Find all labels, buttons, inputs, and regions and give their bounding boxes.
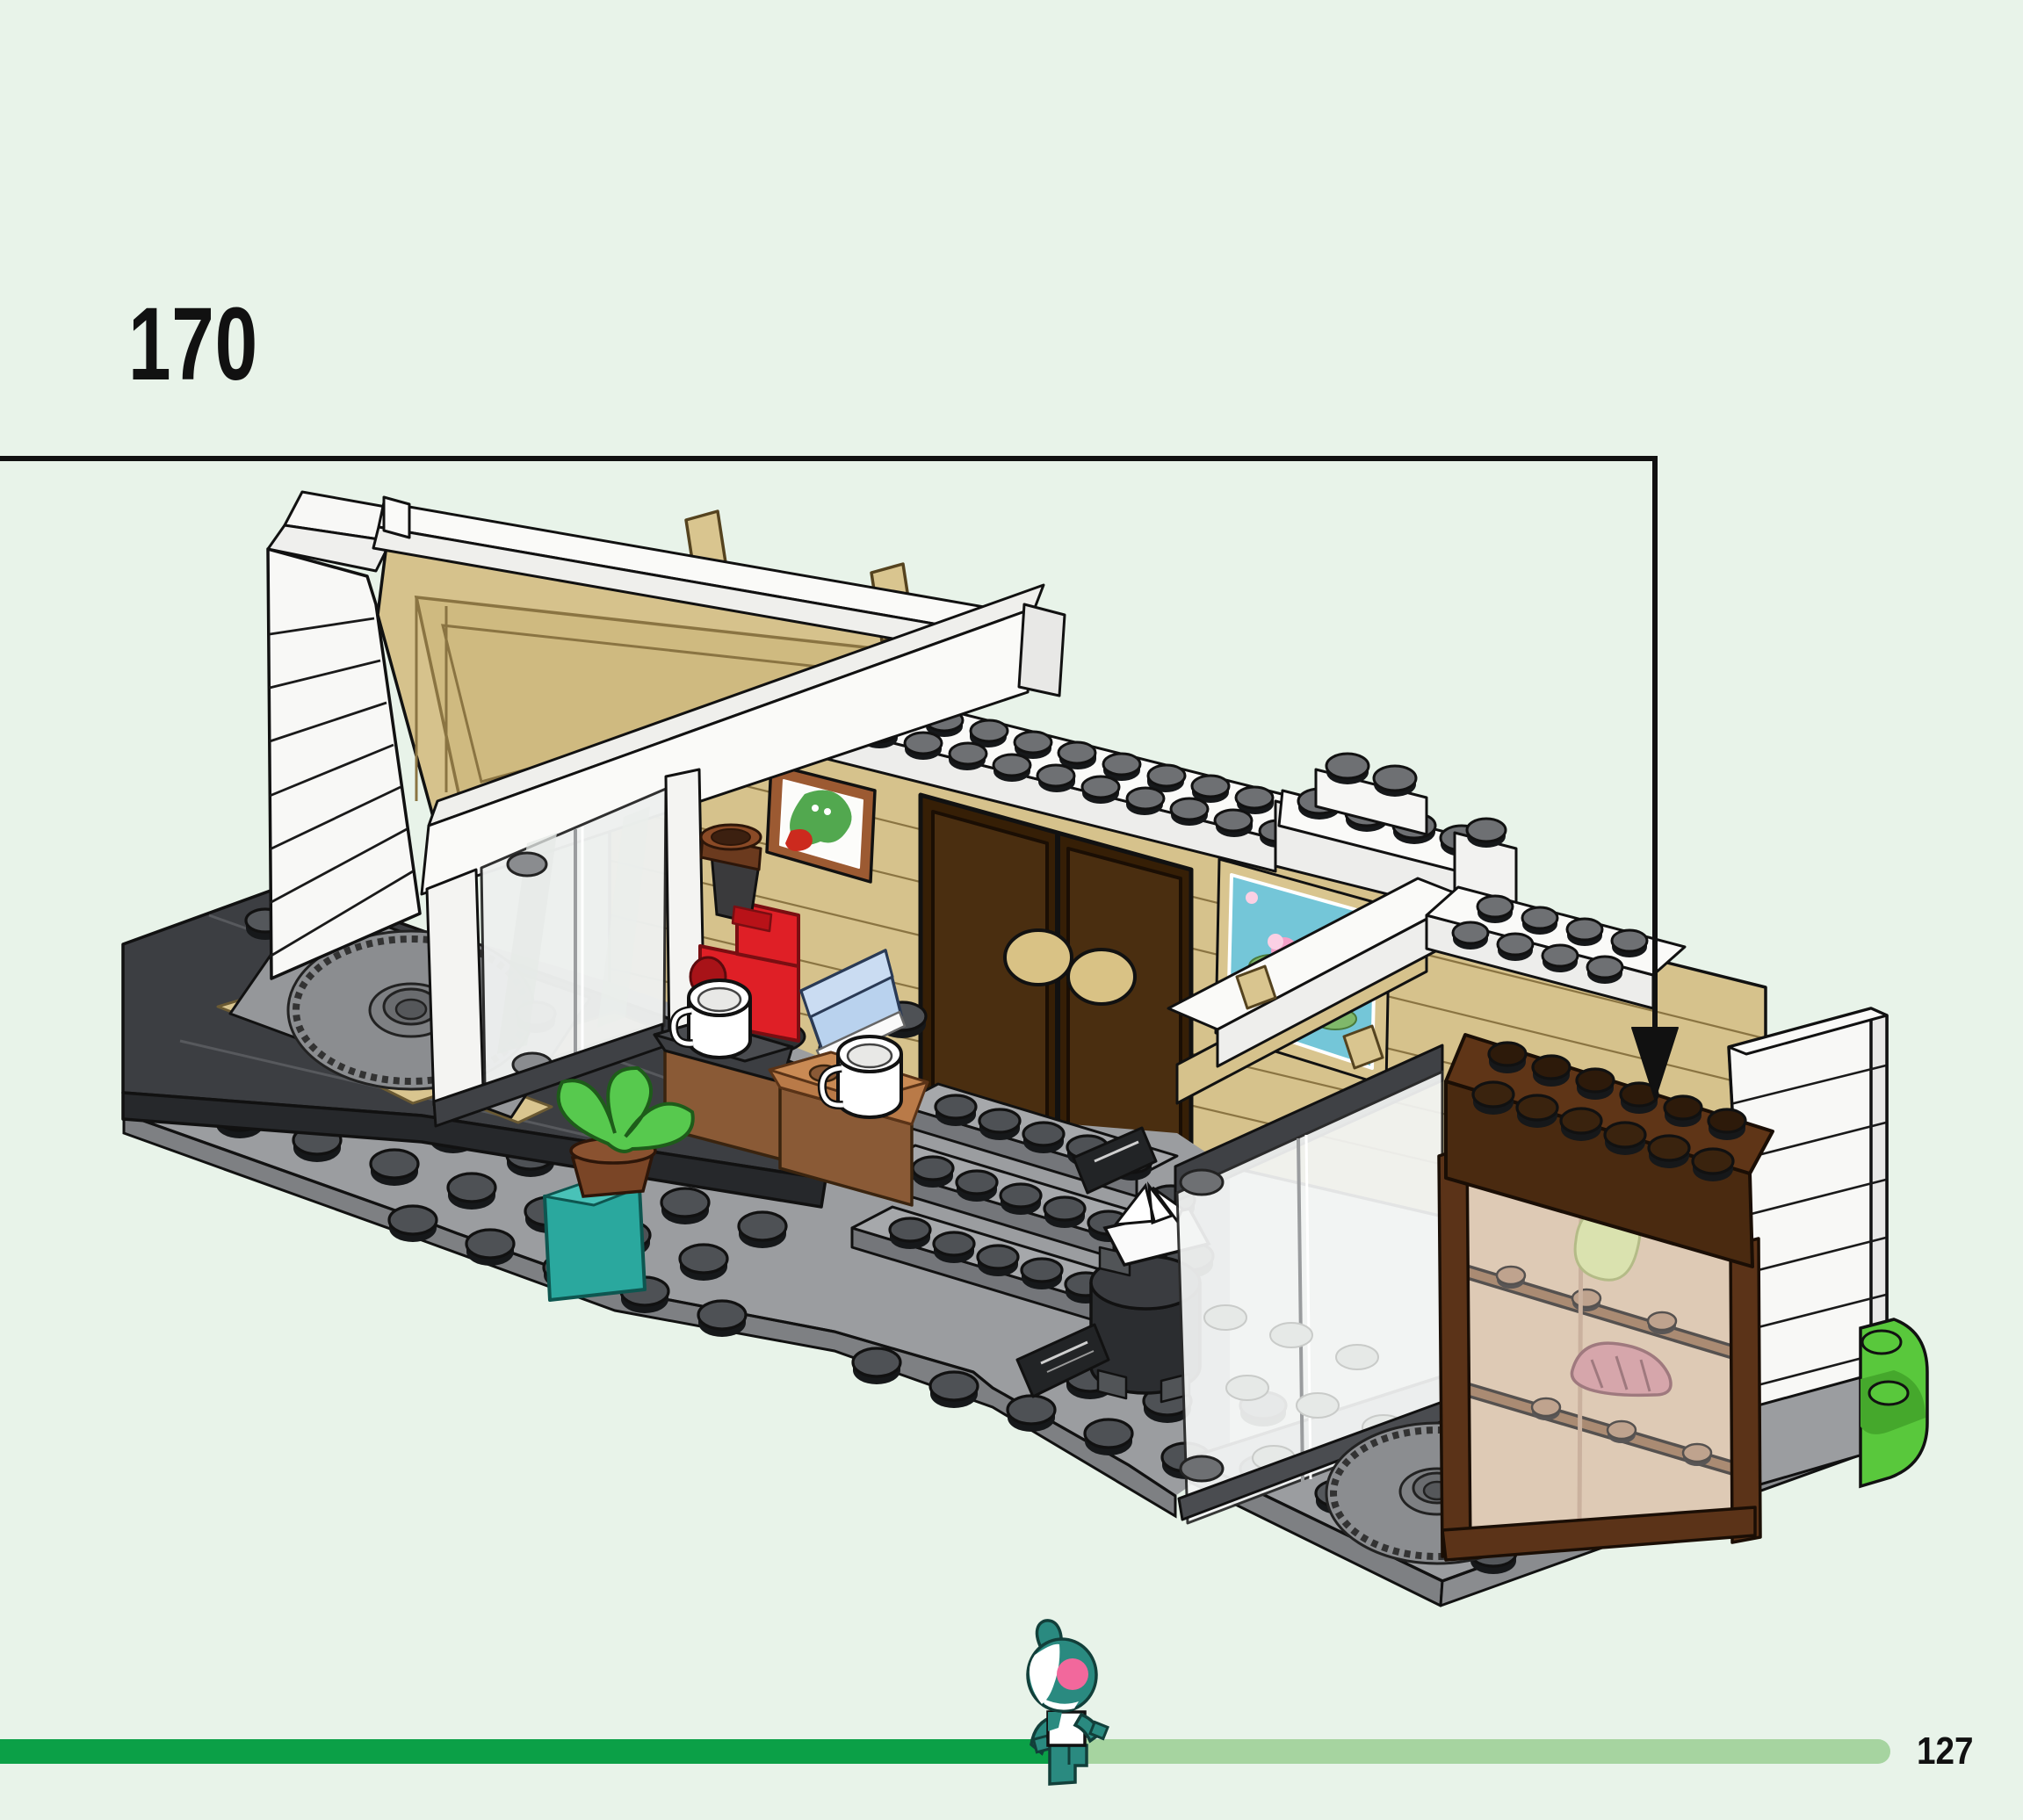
svg-text:170: 170: [128, 285, 258, 401]
svg-text:127: 127: [1917, 1729, 1974, 1773]
